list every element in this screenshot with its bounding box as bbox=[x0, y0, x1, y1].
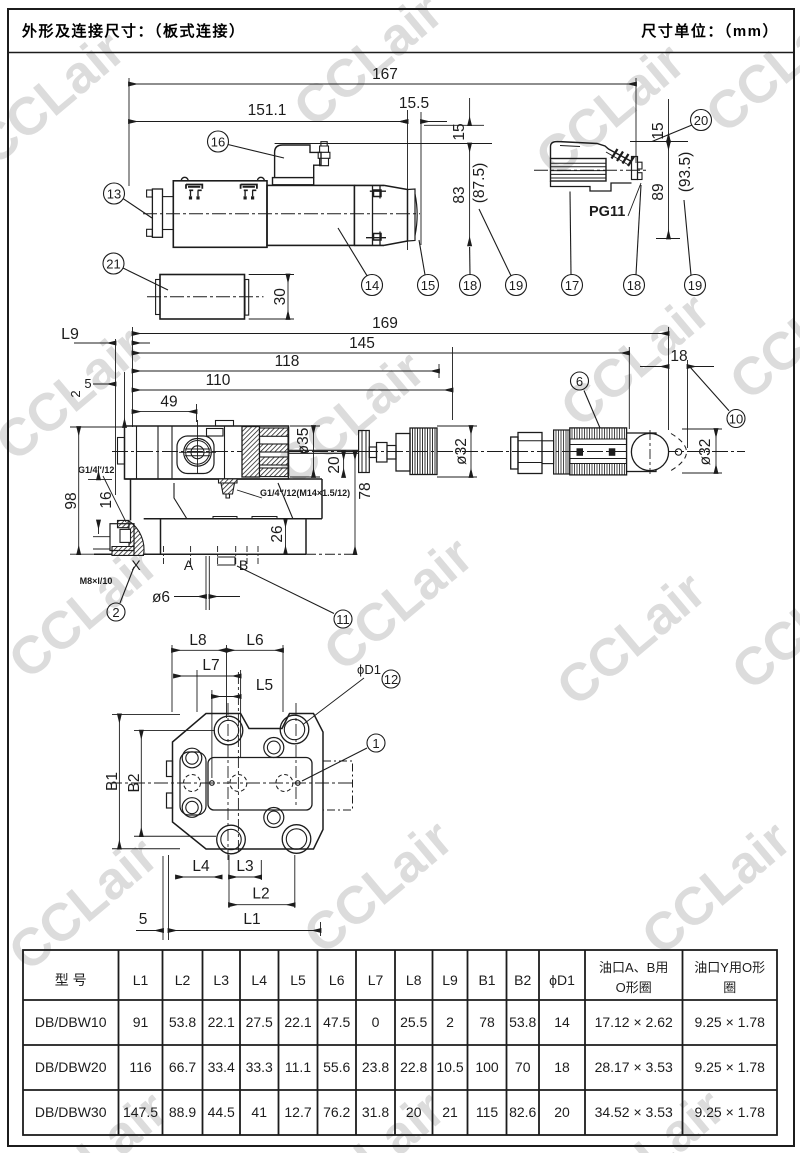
svg-text:尺寸单位：（mm）: 尺寸单位：（mm） bbox=[641, 22, 779, 40]
svg-text:O形圈: O形圈 bbox=[616, 980, 652, 995]
svg-text:L4: L4 bbox=[192, 858, 210, 875]
svg-text:21: 21 bbox=[106, 256, 120, 271]
svg-text:B1: B1 bbox=[478, 972, 495, 988]
svg-text:型 号: 型 号 bbox=[55, 972, 87, 988]
svg-text:53.8: 53.8 bbox=[169, 1014, 196, 1030]
svg-text:L1: L1 bbox=[133, 972, 149, 988]
svg-text:89: 89 bbox=[650, 183, 667, 200]
svg-text:13: 13 bbox=[107, 186, 121, 201]
svg-text:18: 18 bbox=[627, 278, 641, 293]
svg-text:0: 0 bbox=[372, 1014, 380, 1030]
svg-text:26: 26 bbox=[269, 525, 286, 542]
svg-text:22.8: 22.8 bbox=[400, 1059, 427, 1075]
svg-text:10: 10 bbox=[729, 411, 743, 426]
svg-text:ϕD1: ϕD1 bbox=[357, 662, 381, 677]
svg-text:145: 145 bbox=[349, 335, 375, 352]
svg-text:78: 78 bbox=[357, 482, 374, 499]
svg-text:21: 21 bbox=[442, 1104, 458, 1120]
svg-text:L6: L6 bbox=[329, 972, 345, 988]
svg-text:2: 2 bbox=[446, 1014, 454, 1030]
svg-text:33.3: 33.3 bbox=[246, 1059, 273, 1075]
svg-text:12: 12 bbox=[384, 672, 398, 687]
svg-text:9.25 × 1.78: 9.25 × 1.78 bbox=[694, 1014, 765, 1030]
svg-text:G1/4″/12: G1/4″/12 bbox=[78, 465, 114, 475]
svg-text:28.17 × 3.53: 28.17 × 3.53 bbox=[595, 1059, 673, 1075]
svg-text:ø6: ø6 bbox=[152, 589, 170, 606]
svg-text:151.1: 151.1 bbox=[248, 102, 287, 119]
svg-text:L1: L1 bbox=[243, 911, 260, 928]
svg-text:(87.5): (87.5) bbox=[471, 163, 488, 204]
svg-text:22.1: 22.1 bbox=[208, 1014, 235, 1030]
svg-text:23.8: 23.8 bbox=[362, 1059, 389, 1075]
svg-text:油口A、B用: 油口A、B用 bbox=[599, 960, 668, 975]
svg-text:PG11: PG11 bbox=[589, 204, 625, 220]
svg-text:2: 2 bbox=[68, 390, 83, 397]
svg-text:18: 18 bbox=[554, 1059, 570, 1075]
svg-text:L6: L6 bbox=[246, 632, 263, 649]
svg-text:22.1: 22.1 bbox=[284, 1014, 311, 1030]
svg-text:83: 83 bbox=[451, 186, 468, 203]
svg-text:圈: 圈 bbox=[723, 980, 736, 995]
svg-text:25.5: 25.5 bbox=[400, 1014, 427, 1030]
svg-text:1: 1 bbox=[372, 736, 379, 751]
svg-text:DB/DBW20: DB/DBW20 bbox=[35, 1059, 107, 1075]
svg-text:B2: B2 bbox=[514, 972, 531, 988]
svg-text:55.6: 55.6 bbox=[323, 1059, 350, 1075]
svg-text:ϕD1: ϕD1 bbox=[549, 972, 575, 988]
svg-text:L5: L5 bbox=[290, 972, 306, 988]
svg-text:88.9: 88.9 bbox=[169, 1104, 196, 1120]
svg-text:11: 11 bbox=[336, 612, 350, 627]
svg-text:DB/DBW10: DB/DBW10 bbox=[35, 1014, 107, 1030]
svg-text:147.5: 147.5 bbox=[123, 1104, 158, 1120]
svg-text:20: 20 bbox=[406, 1104, 422, 1120]
svg-text:44.5: 44.5 bbox=[208, 1104, 235, 1120]
svg-text:15.5: 15.5 bbox=[399, 95, 429, 112]
svg-text:15: 15 bbox=[451, 123, 468, 140]
svg-text:19: 19 bbox=[688, 278, 702, 293]
svg-text:20: 20 bbox=[326, 456, 343, 474]
svg-text:ø32: ø32 bbox=[453, 438, 470, 465]
svg-text:47.5: 47.5 bbox=[323, 1014, 350, 1030]
svg-text:18: 18 bbox=[463, 278, 477, 293]
svg-text:167: 167 bbox=[372, 66, 398, 83]
svg-text:L4: L4 bbox=[251, 972, 267, 988]
svg-text:27.5: 27.5 bbox=[246, 1014, 273, 1030]
svg-text:49: 49 bbox=[160, 394, 177, 411]
svg-text:15: 15 bbox=[421, 278, 435, 293]
svg-text:油口Y用O形: 油口Y用O形 bbox=[694, 960, 765, 975]
svg-text:33.4: 33.4 bbox=[208, 1059, 235, 1075]
svg-text:82.6: 82.6 bbox=[509, 1104, 536, 1120]
svg-text:L8: L8 bbox=[406, 972, 422, 988]
svg-text:18: 18 bbox=[670, 348, 687, 365]
svg-text:外形及连接尺寸：（板式连接）: 外形及连接尺寸：（板式连接） bbox=[21, 22, 246, 40]
svg-text:ø32: ø32 bbox=[697, 439, 714, 466]
svg-text:20: 20 bbox=[694, 113, 708, 128]
svg-text:118: 118 bbox=[275, 353, 300, 370]
svg-text:20: 20 bbox=[554, 1104, 570, 1120]
svg-text:115: 115 bbox=[476, 1104, 499, 1120]
svg-text:116: 116 bbox=[129, 1059, 152, 1075]
svg-text:(93.5): (93.5) bbox=[677, 152, 694, 193]
svg-text:11.1: 11.1 bbox=[285, 1059, 311, 1075]
svg-text:169: 169 bbox=[372, 315, 398, 332]
svg-text:30: 30 bbox=[272, 288, 289, 306]
svg-text:76.2: 76.2 bbox=[323, 1104, 350, 1120]
svg-text:L2: L2 bbox=[175, 972, 191, 988]
svg-text:34.52 × 3.53: 34.52 × 3.53 bbox=[595, 1104, 673, 1120]
svg-text:B1: B1 bbox=[104, 772, 121, 791]
svg-text:L2: L2 bbox=[252, 886, 269, 903]
svg-text:L3: L3 bbox=[213, 972, 229, 988]
svg-text:L9: L9 bbox=[61, 326, 79, 343]
svg-text:53.8: 53.8 bbox=[509, 1014, 536, 1030]
svg-text:14: 14 bbox=[365, 278, 379, 293]
svg-text:31.8: 31.8 bbox=[362, 1104, 389, 1120]
svg-text:L7: L7 bbox=[202, 657, 219, 674]
svg-text:A: A bbox=[184, 557, 194, 573]
svg-text:91: 91 bbox=[133, 1014, 149, 1030]
svg-text:78: 78 bbox=[479, 1014, 495, 1030]
svg-text:17: 17 bbox=[565, 278, 579, 293]
svg-text:14: 14 bbox=[554, 1014, 570, 1030]
svg-text:15: 15 bbox=[650, 122, 667, 139]
svg-text:10.5: 10.5 bbox=[436, 1059, 463, 1075]
svg-text:100: 100 bbox=[475, 1059, 499, 1075]
svg-text:6: 6 bbox=[576, 374, 583, 389]
svg-text:5: 5 bbox=[139, 911, 148, 928]
svg-text:L9: L9 bbox=[442, 972, 458, 988]
svg-text:66.7: 66.7 bbox=[169, 1059, 196, 1075]
svg-text:110: 110 bbox=[206, 372, 231, 389]
svg-text:B2: B2 bbox=[126, 774, 143, 793]
svg-text:41: 41 bbox=[251, 1104, 267, 1120]
svg-text:2: 2 bbox=[112, 605, 119, 620]
svg-text:G1/4″/12(M14×1.5/12): G1/4″/12(M14×1.5/12) bbox=[260, 488, 350, 498]
svg-text:17.12 × 2.62: 17.12 × 2.62 bbox=[595, 1014, 673, 1030]
svg-text:12.7: 12.7 bbox=[284, 1104, 311, 1120]
svg-text:9.25 × 1.78: 9.25 × 1.78 bbox=[694, 1059, 765, 1075]
svg-text:98: 98 bbox=[63, 492, 80, 509]
svg-text:L8: L8 bbox=[189, 632, 206, 649]
svg-text:70: 70 bbox=[515, 1059, 531, 1075]
svg-text:L7: L7 bbox=[368, 972, 384, 988]
svg-text:9.25 × 1.78: 9.25 × 1.78 bbox=[694, 1104, 765, 1120]
svg-text:5: 5 bbox=[84, 376, 91, 391]
svg-text:16: 16 bbox=[211, 134, 225, 149]
svg-text:19: 19 bbox=[509, 278, 523, 293]
svg-text:L3: L3 bbox=[236, 858, 253, 875]
svg-text:DB/DBW30: DB/DBW30 bbox=[35, 1104, 107, 1120]
svg-text:M8×l/10: M8×l/10 bbox=[80, 576, 113, 586]
svg-text:L5: L5 bbox=[256, 677, 273, 694]
